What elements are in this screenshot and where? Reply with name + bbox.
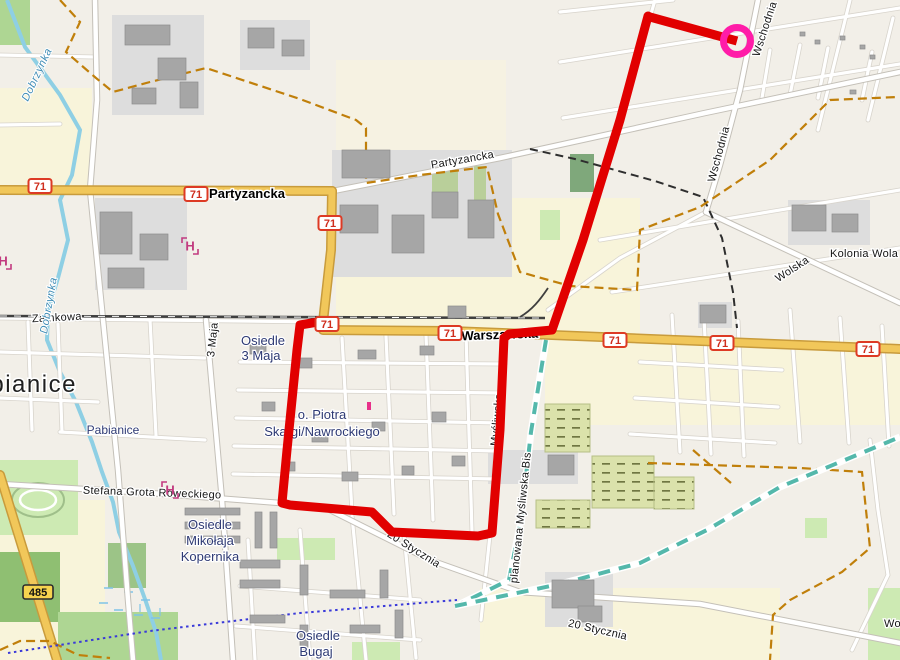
road-shield: 71 [185, 187, 208, 201]
building [240, 580, 280, 588]
building [832, 214, 858, 232]
road-shield-number: 71 [444, 328, 456, 340]
street-label: Kolonia Wola [830, 248, 899, 260]
building [100, 212, 132, 254]
hospital-letter: H [0, 254, 8, 269]
building [140, 234, 168, 260]
road-shield-number: 71 [862, 344, 874, 356]
building [358, 350, 376, 359]
building [158, 58, 186, 80]
road-shield: 71 [711, 336, 734, 350]
poi-marker [367, 402, 371, 410]
building [108, 268, 144, 288]
road-shield-number: 71 [716, 338, 728, 350]
street-label: Wola [884, 618, 900, 630]
hospital-letter: H [165, 483, 174, 498]
building [432, 412, 446, 422]
building [552, 580, 594, 608]
map-viewport[interactable]: ZamkowaPartyzanckaPartyzanckaWarszawskaW… [0, 0, 900, 660]
road-shield: 71 [319, 216, 342, 230]
building [815, 40, 820, 44]
hospital-letter: H [185, 239, 194, 254]
building [255, 512, 262, 548]
road-shield-number: 71 [324, 218, 336, 230]
road-shield-number: 71 [34, 181, 46, 193]
building [248, 28, 274, 48]
building [350, 625, 380, 633]
place-label: Mikołaja [186, 533, 234, 548]
building [270, 512, 277, 548]
building [860, 45, 865, 49]
building [342, 472, 358, 481]
road-shield: 71 [604, 333, 627, 347]
road [0, 124, 60, 125]
building [300, 565, 308, 595]
building [125, 25, 170, 45]
building [132, 88, 156, 104]
city-name-label: Pabianice [0, 371, 77, 398]
road-shield: 485 [23, 585, 53, 599]
building [342, 150, 390, 178]
building [395, 610, 403, 638]
road-shield: 71 [439, 326, 462, 340]
road-shield-number: 71 [321, 319, 333, 331]
map-canvas[interactable]: ZamkowaPartyzanckaPartyzanckaWarszawskaW… [0, 0, 900, 660]
building [402, 466, 414, 475]
building [840, 36, 845, 40]
building [870, 55, 875, 59]
building [262, 402, 275, 411]
building [340, 205, 378, 233]
road-shield: 71 [857, 342, 880, 356]
building [392, 215, 424, 253]
building [185, 508, 240, 515]
road-shield-number: 71 [190, 189, 202, 201]
building [800, 32, 805, 36]
building [792, 205, 826, 231]
building [432, 192, 458, 218]
building [468, 200, 494, 238]
building [700, 305, 726, 323]
place-label: Skargi/Nawrockiego [264, 424, 380, 439]
road-shield: 71 [29, 179, 52, 193]
place-label: Kopernika [181, 549, 240, 564]
place-label: Osiedle [241, 333, 285, 348]
building [180, 82, 198, 108]
building [452, 456, 465, 466]
place-label: Osiedle [188, 517, 232, 532]
place-label: Pabianice [87, 423, 140, 437]
place-label: Osiedle [296, 628, 340, 643]
building [282, 40, 304, 56]
street-label: Partyzancka [209, 186, 286, 201]
place-label: Bugaj [299, 644, 332, 659]
building [448, 306, 466, 318]
place-label: 3 Maja [241, 348, 281, 363]
road-shield-number: 71 [609, 335, 621, 347]
building [850, 90, 856, 94]
building [330, 590, 365, 598]
building [420, 346, 434, 355]
road-shield: 71 [316, 317, 339, 331]
building [380, 570, 388, 598]
building [548, 455, 574, 475]
building [240, 560, 280, 568]
place-label: o. Piotra [298, 407, 347, 422]
building [250, 615, 285, 623]
road-shield-number: 485 [29, 587, 47, 599]
